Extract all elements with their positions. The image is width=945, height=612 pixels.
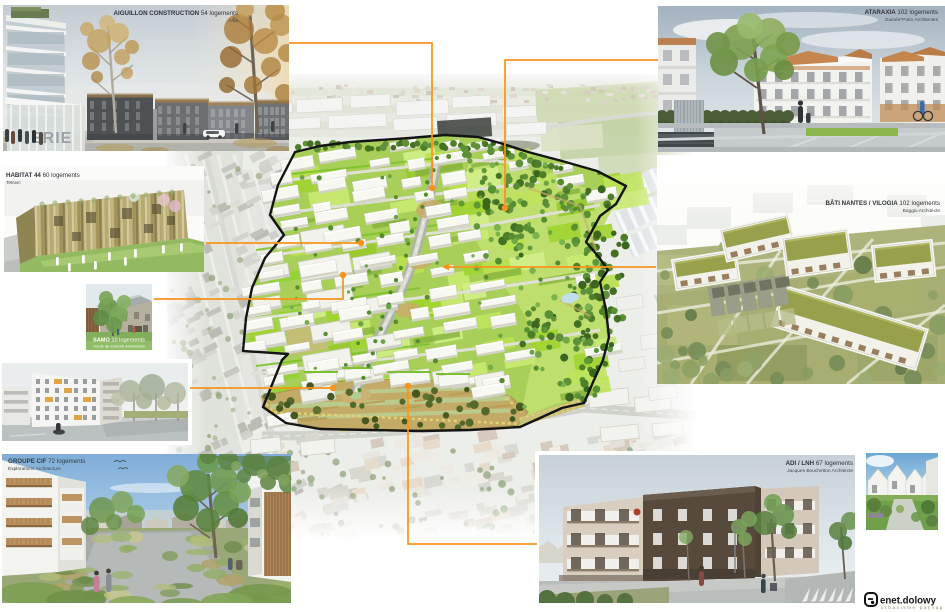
svg-text:urbanisme paysage: urbanisme paysage bbox=[881, 605, 942, 610]
